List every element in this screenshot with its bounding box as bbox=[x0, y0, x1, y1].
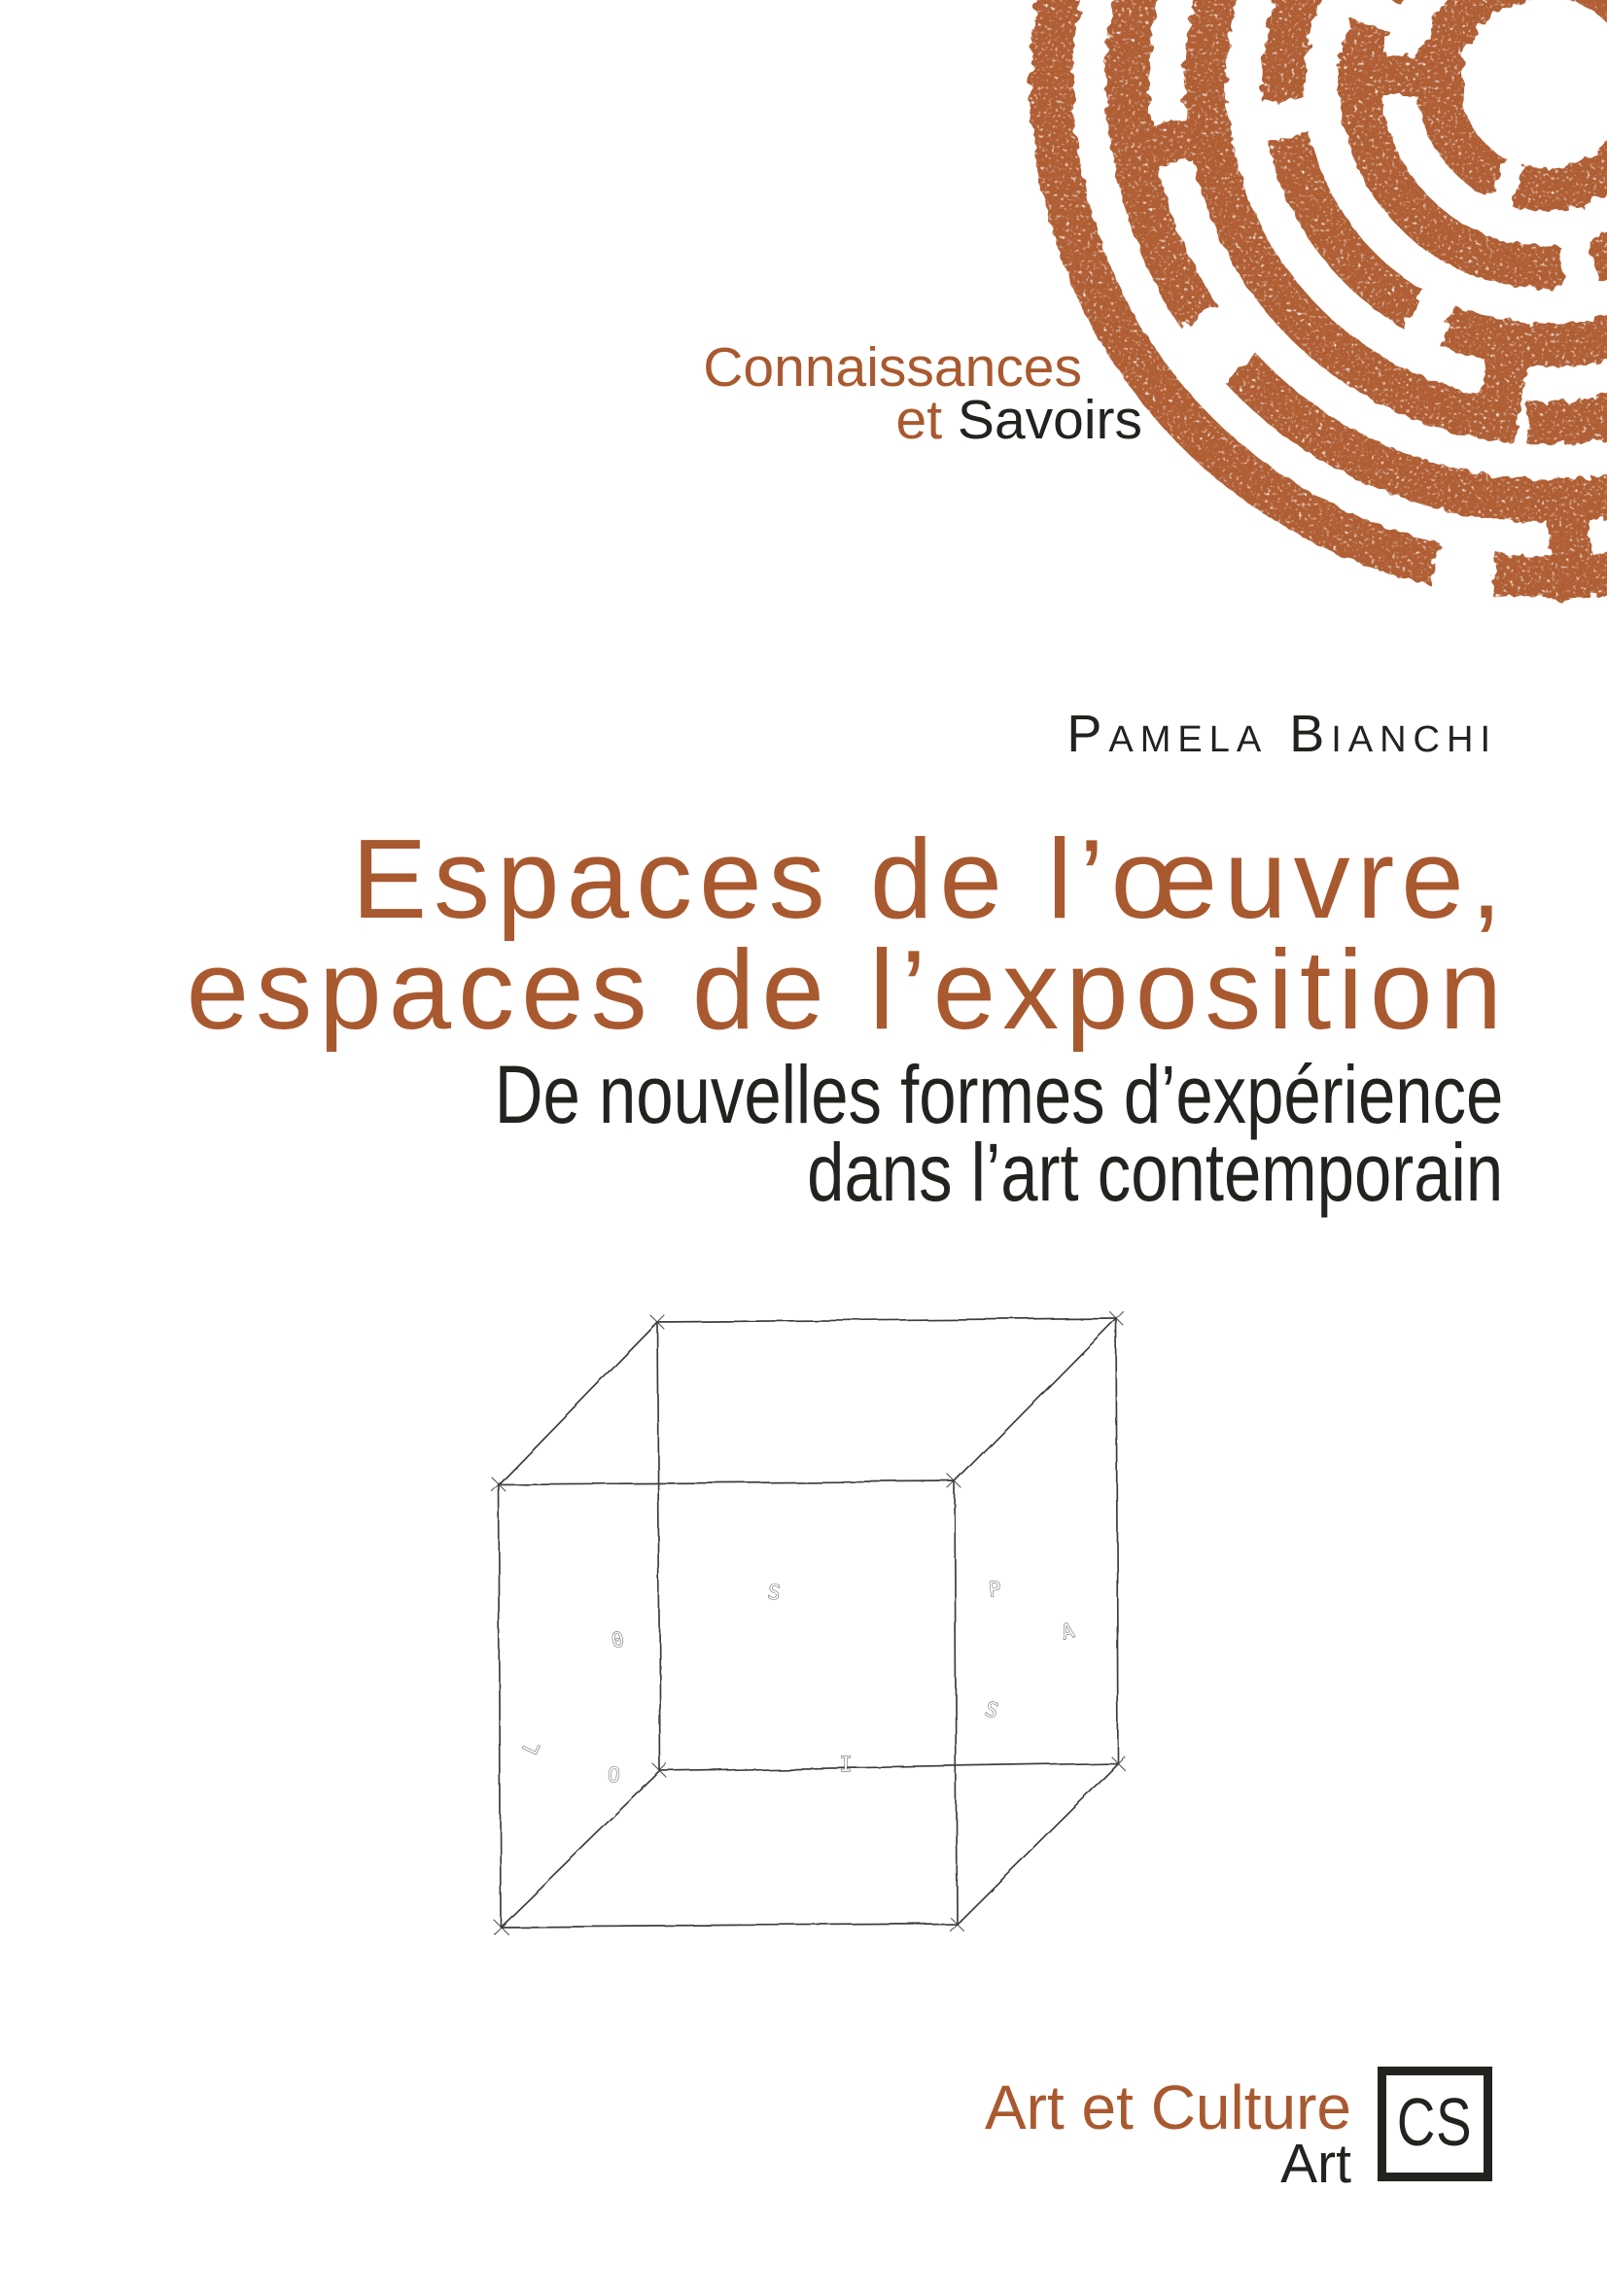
cube-letter: S bbox=[766, 1580, 783, 1605]
publisher-logo-box: CS bbox=[1378, 2067, 1492, 2181]
publisher-name-line1: Connaissances bbox=[703, 340, 1082, 396]
book-title-line2: espaces de l’exposition bbox=[187, 933, 1509, 1046]
labyrinth-logo bbox=[1052, 0, 1607, 599]
cube-edge bbox=[499, 1481, 957, 1927]
publisher-name-main: Savoirs bbox=[958, 389, 1142, 451]
labyrinth-bar bbox=[1338, 72, 1462, 79]
book-title-line1: Espaces de l’œuvre, bbox=[352, 822, 1509, 935]
publisher-name-accent: et bbox=[896, 389, 943, 451]
labyrinth-bar bbox=[1495, 322, 1512, 441]
category-name: Art bbox=[1280, 2137, 1351, 2192]
labyrinth-bar bbox=[1566, 478, 1572, 599]
book-cover: { "page": { "background": "#ffffff" }, "… bbox=[0, 0, 1607, 2296]
publisher-name-line2: et Savoirs bbox=[896, 393, 1142, 448]
author-name: Pamela Bianchi bbox=[1066, 708, 1497, 760]
cube-letter: 0 bbox=[610, 1627, 626, 1652]
cube-edge bbox=[955, 1318, 1116, 1481]
labyrinth-ring bbox=[1439, 0, 1607, 190]
cube-letter: S bbox=[982, 1697, 1000, 1723]
publisher-logo-initials: CS bbox=[1397, 2088, 1472, 2160]
cube-letter: P bbox=[988, 1577, 1002, 1601]
cube-letter: A bbox=[1059, 1618, 1076, 1644]
cube-edge bbox=[499, 1322, 657, 1484]
book-subtitle-line2: dans l’art contemporain bbox=[807, 1131, 1503, 1213]
labyrinth-ring bbox=[1361, 0, 1607, 267]
cube-edge bbox=[957, 1763, 1118, 1924]
collection-name: Art et Culture bbox=[985, 2076, 1351, 2139]
cube-edge bbox=[501, 1771, 660, 1927]
cube-letter: L bbox=[518, 1737, 544, 1758]
cube-letter: I bbox=[840, 1753, 853, 1776]
cube-letter: O bbox=[607, 1763, 620, 1788]
labyrinth-bar bbox=[1112, 133, 1230, 152]
book-subtitle-line1: De nouvelles formes d’expérience bbox=[494, 1054, 1503, 1135]
cube-letters: S P 0 A L S O I bbox=[518, 1577, 1077, 1787]
cube-sketch bbox=[492, 1311, 1125, 1933]
